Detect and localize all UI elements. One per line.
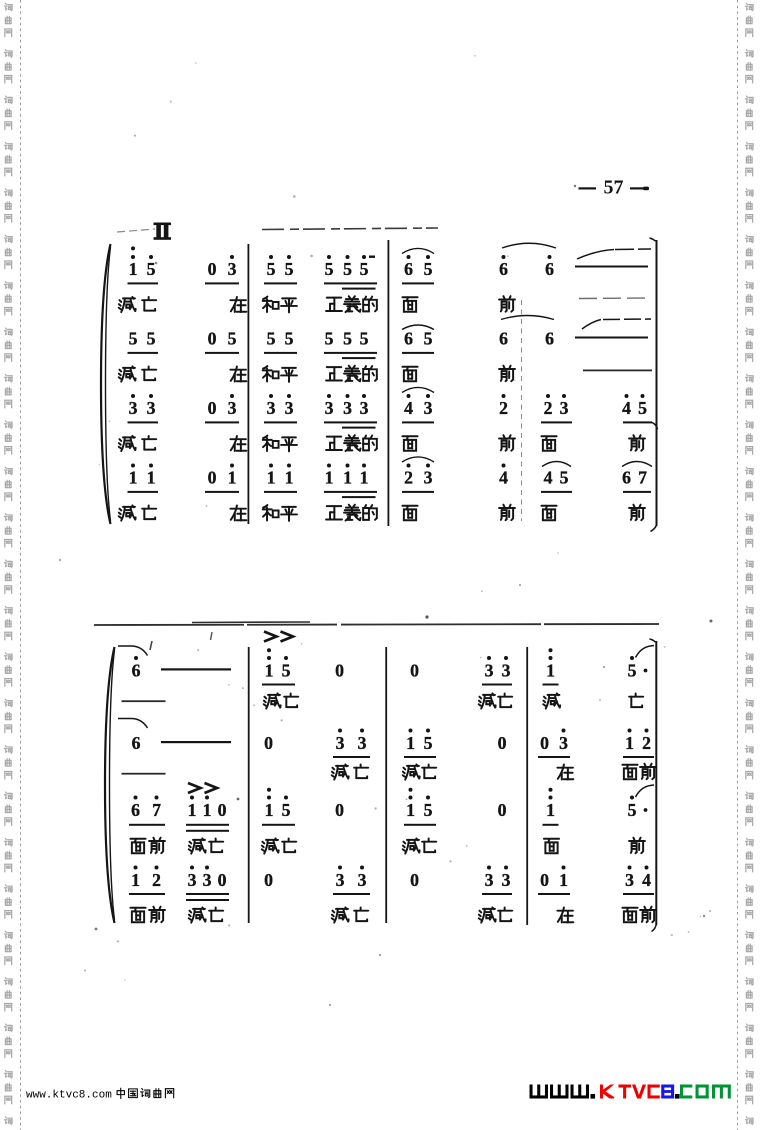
svg-text:0: 0 [540, 870, 549, 890]
svg-text:3: 3 [485, 870, 494, 890]
svg-text:6: 6 [545, 329, 554, 349]
svg-text:1: 1 [265, 661, 274, 681]
svg-text:0: 0 [498, 733, 507, 753]
svg-text:2: 2 [544, 398, 553, 418]
svg-text:5: 5 [343, 329, 352, 349]
svg-text:1: 1 [325, 468, 334, 488]
svg-text:57: 57 [604, 177, 624, 199]
svg-text:2: 2 [642, 733, 651, 753]
svg-text:5: 5 [147, 259, 156, 279]
svg-text:1: 1 [188, 800, 197, 820]
svg-text:6: 6 [132, 733, 141, 753]
svg-text:1: 1 [406, 733, 415, 753]
svg-text:5: 5 [267, 329, 276, 349]
svg-text:3: 3 [188, 870, 197, 890]
svg-text:5: 5 [628, 800, 637, 820]
svg-text:4: 4 [499, 468, 508, 488]
svg-text:5: 5 [638, 398, 647, 418]
svg-text:6: 6 [132, 661, 141, 681]
svg-text:3: 3 [203, 870, 212, 890]
svg-text:0: 0 [208, 468, 217, 488]
svg-text:0: 0 [540, 733, 549, 753]
svg-text:2: 2 [152, 870, 161, 890]
svg-text:5: 5 [147, 329, 156, 349]
svg-text:3: 3 [228, 259, 237, 279]
svg-text:2: 2 [404, 468, 413, 488]
svg-text:3: 3 [559, 733, 568, 753]
svg-text:5: 5 [282, 661, 291, 681]
svg-text:7: 7 [638, 468, 647, 488]
svg-text:5: 5 [285, 329, 294, 349]
svg-text:www.ktvc8.com: www.ktvc8.com [26, 1090, 112, 1102]
svg-text:3: 3 [147, 398, 156, 418]
svg-text:5: 5 [325, 329, 334, 349]
svg-text:5: 5 [129, 329, 138, 349]
svg-text:3: 3 [424, 468, 433, 488]
svg-text:1: 1 [131, 870, 140, 890]
svg-text:3: 3 [424, 398, 433, 418]
svg-text:6: 6 [499, 259, 508, 279]
svg-text:1: 1 [546, 800, 555, 820]
svg-text:4: 4 [544, 468, 553, 488]
svg-text:5: 5 [360, 329, 369, 349]
svg-text:1: 1 [203, 800, 212, 820]
svg-text:3: 3 [358, 733, 367, 753]
svg-text:1: 1 [265, 800, 274, 820]
svg-text:5: 5 [424, 259, 433, 279]
svg-text:3: 3 [336, 870, 345, 890]
svg-text:0: 0 [264, 733, 273, 753]
svg-text:5: 5 [228, 329, 237, 349]
svg-text:3: 3 [325, 398, 334, 418]
svg-text:4: 4 [642, 870, 651, 890]
svg-text:6: 6 [545, 259, 554, 279]
svg-text:5: 5 [282, 800, 291, 820]
svg-text:0: 0 [264, 870, 273, 890]
svg-text:6: 6 [131, 800, 140, 820]
svg-text:5: 5 [267, 259, 276, 279]
svg-text:3: 3 [267, 398, 276, 418]
svg-text:3: 3 [336, 733, 345, 753]
svg-text:0: 0 [208, 398, 217, 418]
svg-text:1: 1 [267, 468, 276, 488]
svg-text:1: 1 [360, 468, 369, 488]
svg-text:3: 3 [502, 661, 511, 681]
svg-text:0: 0 [410, 870, 419, 890]
svg-text:5: 5 [560, 468, 569, 488]
svg-text:3: 3 [343, 398, 352, 418]
svg-text:5: 5 [424, 800, 433, 820]
svg-text:5: 5 [325, 259, 334, 279]
svg-text:5: 5 [424, 329, 433, 349]
svg-text:1: 1 [285, 468, 294, 488]
svg-text:0: 0 [208, 329, 217, 349]
svg-text:3: 3 [625, 870, 634, 890]
svg-text:3: 3 [228, 398, 237, 418]
svg-text:5: 5 [360, 259, 369, 279]
svg-text:1: 1 [147, 468, 156, 488]
svg-text:5: 5 [343, 259, 352, 279]
svg-text:4: 4 [404, 398, 413, 418]
svg-text:4: 4 [622, 398, 631, 418]
svg-text:0: 0 [208, 259, 217, 279]
svg-text:0: 0 [218, 800, 227, 820]
svg-text:3: 3 [129, 398, 138, 418]
svg-text:3: 3 [285, 398, 294, 418]
svg-text:0: 0 [335, 800, 344, 820]
svg-text:1: 1 [559, 870, 568, 890]
svg-text:6: 6 [404, 259, 413, 279]
svg-text:5: 5 [285, 259, 294, 279]
svg-text:1: 1 [343, 468, 352, 488]
svg-text:6: 6 [622, 468, 631, 488]
svg-text:3: 3 [560, 398, 569, 418]
svg-text:3: 3 [485, 661, 494, 681]
svg-text:1: 1 [129, 468, 138, 488]
svg-text:6: 6 [499, 329, 508, 349]
svg-text:1: 1 [625, 733, 634, 753]
svg-text:7: 7 [152, 800, 161, 820]
svg-text:0: 0 [410, 661, 419, 681]
svg-text:1: 1 [228, 468, 237, 488]
svg-text:0: 0 [335, 661, 344, 681]
svg-text:1: 1 [546, 661, 555, 681]
svg-text:2: 2 [499, 398, 508, 418]
svg-text:1: 1 [406, 800, 415, 820]
svg-text:0: 0 [218, 870, 227, 890]
svg-text:3: 3 [360, 398, 369, 418]
svg-text:6: 6 [404, 329, 413, 349]
svg-text:5: 5 [628, 661, 637, 681]
svg-text:3: 3 [502, 870, 511, 890]
svg-text:0: 0 [498, 800, 507, 820]
svg-text:5: 5 [424, 733, 433, 753]
svg-text:3: 3 [358, 870, 367, 890]
svg-text:1: 1 [129, 259, 138, 279]
